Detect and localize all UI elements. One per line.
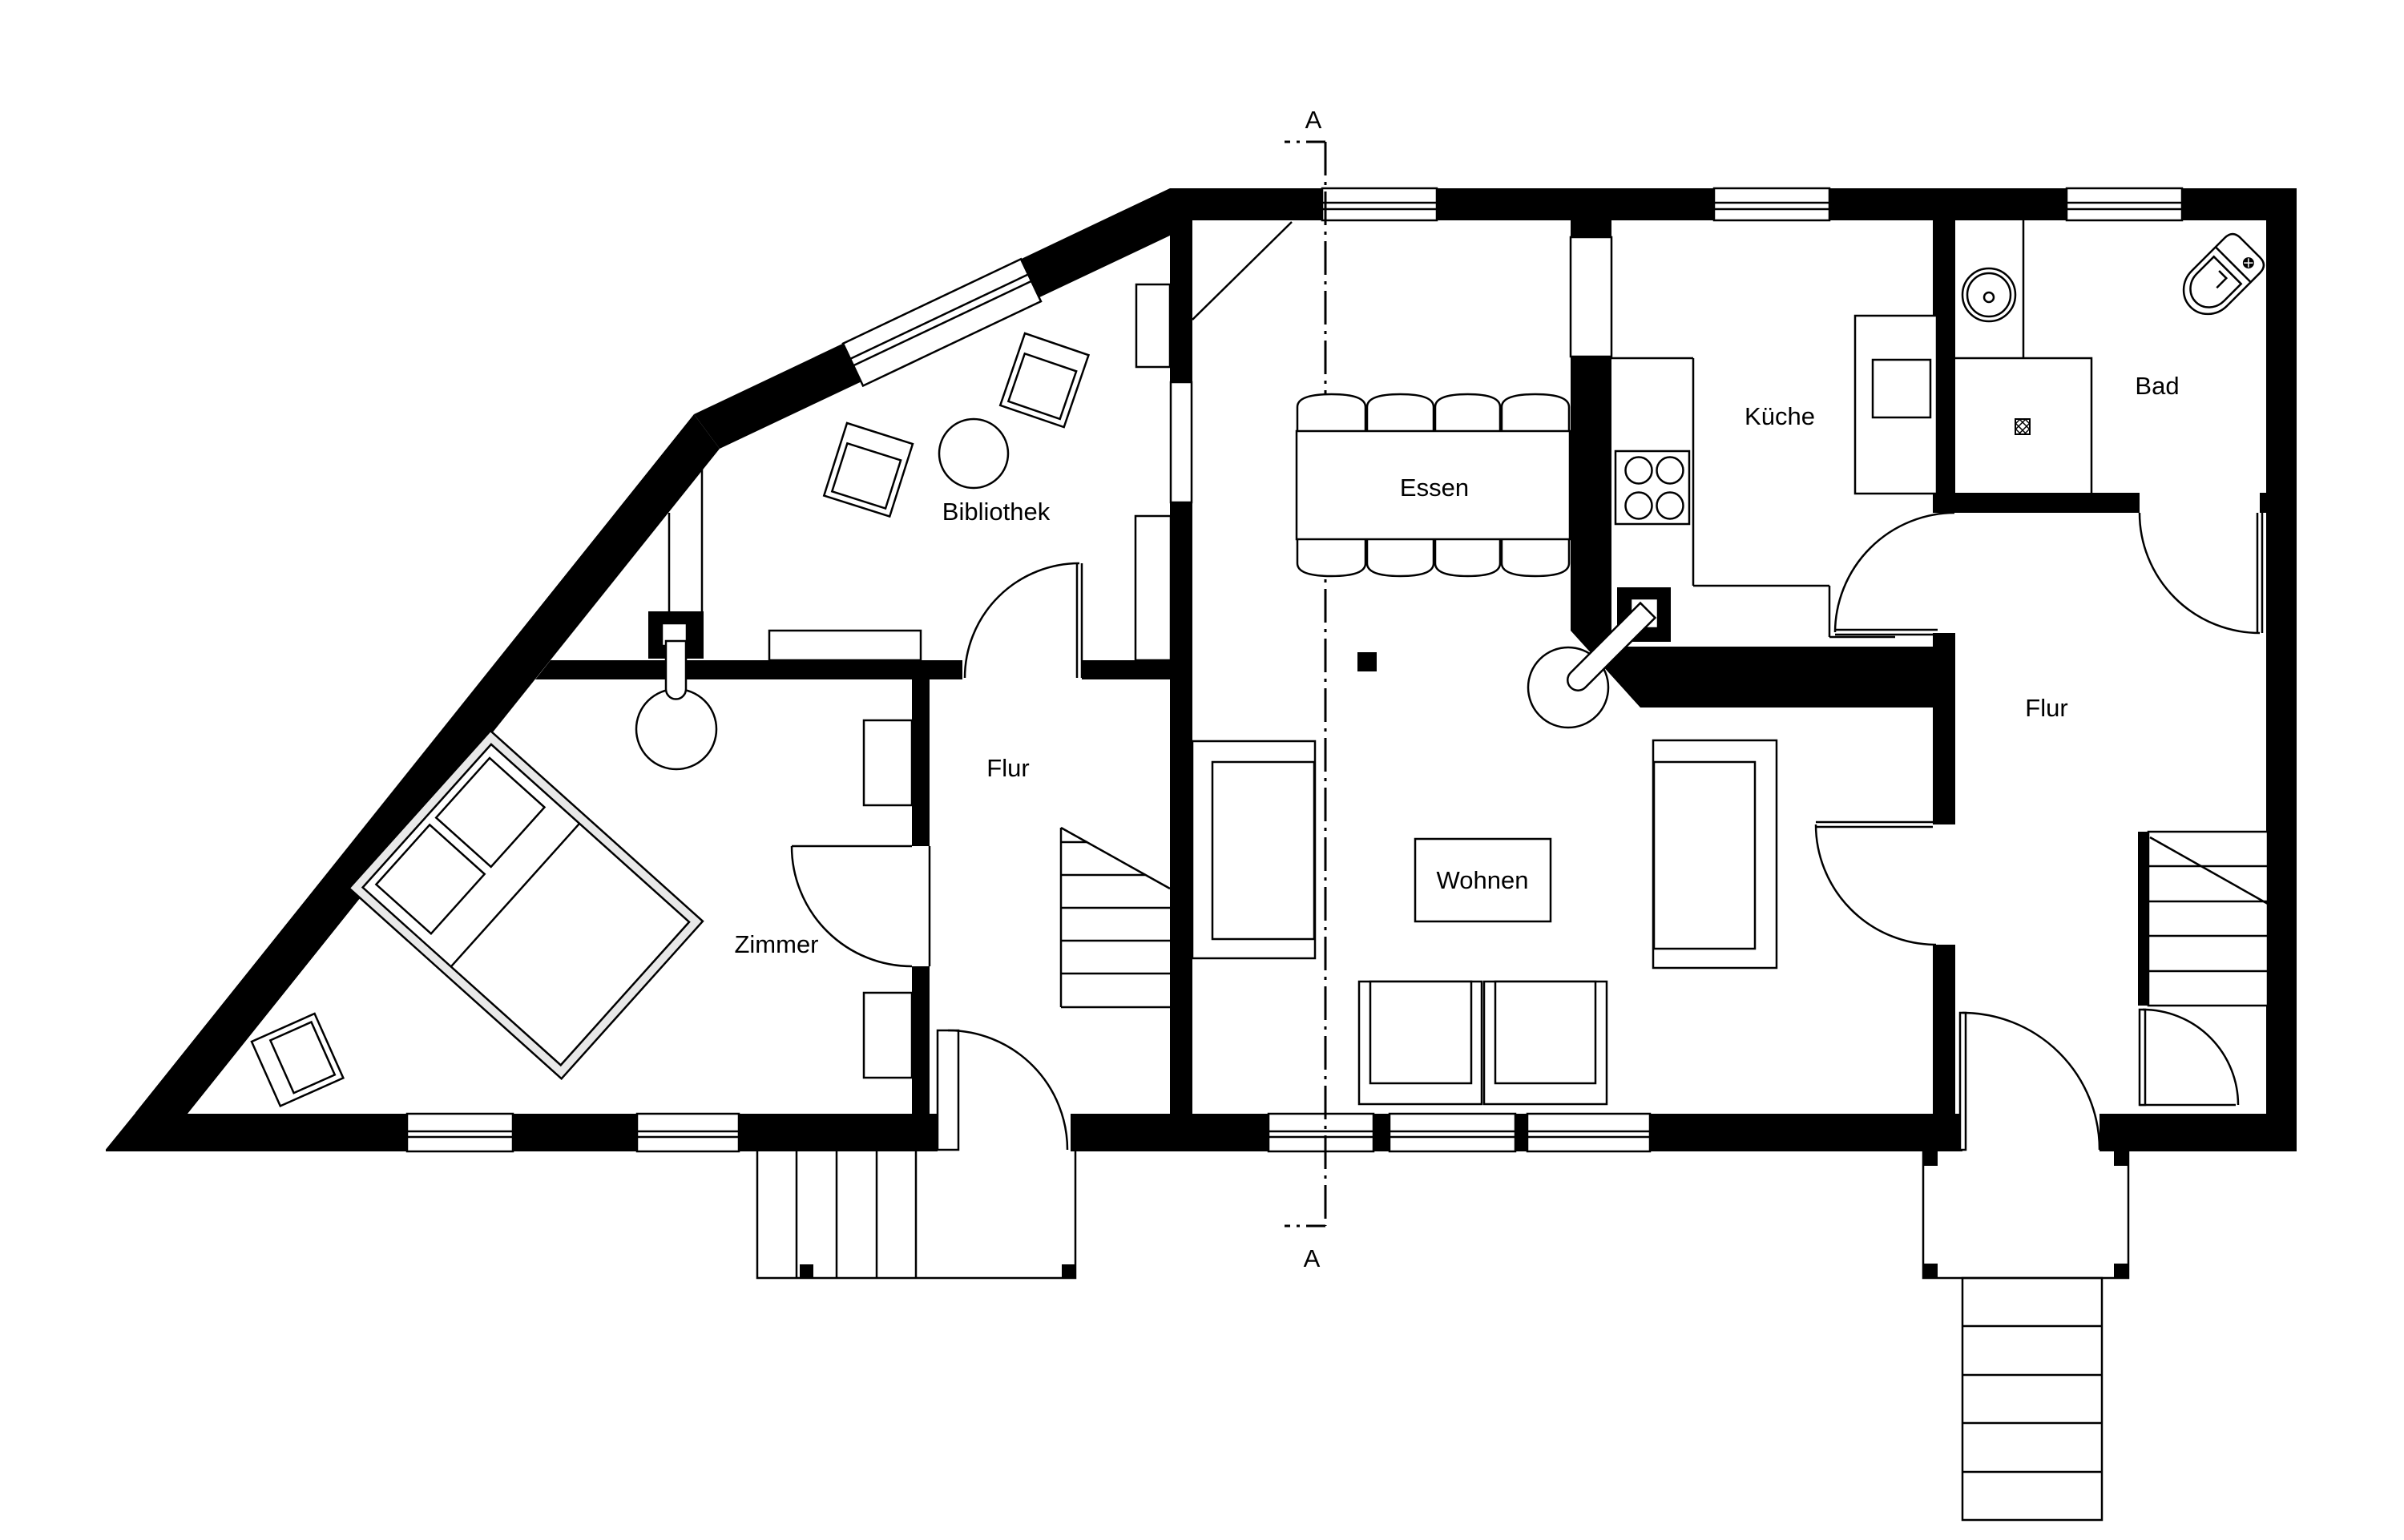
svg-text:A: A	[1305, 106, 1322, 134]
svg-text:Flur: Flur	[2025, 694, 2067, 722]
svg-text:Bibliothek: Bibliothek	[942, 498, 1051, 526]
svg-text:Bad: Bad	[2135, 372, 2179, 400]
svg-text:A: A	[1304, 1244, 1321, 1272]
svg-text:Zimmer: Zimmer	[734, 930, 818, 958]
svg-text:Küche: Küche	[1745, 402, 1815, 430]
svg-text:Wohnen: Wohnen	[1437, 866, 1529, 894]
svg-text:Essen: Essen	[1400, 474, 1469, 502]
svg-text:Flur: Flur	[986, 754, 1029, 782]
